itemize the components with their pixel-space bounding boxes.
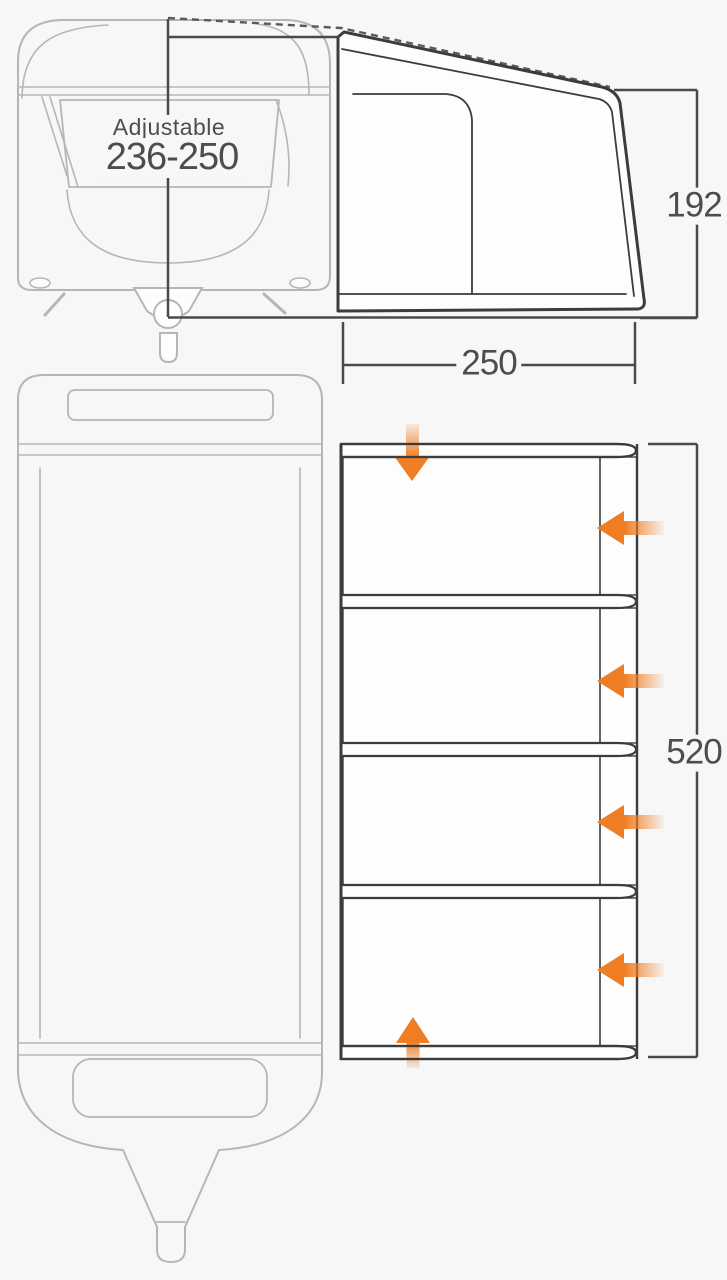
caravan-roof-arc-right xyxy=(258,24,309,94)
caravan-front-pillar-left xyxy=(42,97,78,187)
caravan-plan-view xyxy=(18,375,322,1262)
caravan-front-elevation xyxy=(18,20,330,362)
awning-side-elevation xyxy=(338,32,644,311)
awning-side-outline xyxy=(338,32,644,311)
air-beam-4 xyxy=(341,885,636,898)
caravan-plan-side-lines xyxy=(40,468,300,1038)
caravan-plan-bottom-seam xyxy=(18,1043,322,1055)
awning-height-value: 192 xyxy=(661,188,726,225)
awning-width-value: 250 xyxy=(456,346,521,383)
caravan-plan-front-window xyxy=(68,390,273,420)
caravan-marker-light-right xyxy=(290,278,310,288)
awning-dimension-diagram: Adjustable 236-250 250 192 520 xyxy=(0,0,727,1280)
air-beam-2 xyxy=(341,595,636,608)
awning-plan-view xyxy=(341,424,664,1068)
adjustable-height-value: 236-250 xyxy=(101,138,243,178)
caravan-plan-front-locker xyxy=(73,1059,267,1117)
caravan-marker-light-left xyxy=(30,278,50,288)
caravan-plan-outline xyxy=(18,375,322,1262)
awning-depth-value: 520 xyxy=(661,735,726,772)
air-beam-1 xyxy=(341,444,636,457)
caravan-plan-top-seam xyxy=(18,444,322,455)
air-beam-3 xyxy=(341,743,636,756)
air-beam-5 xyxy=(341,1046,636,1059)
caravan-rail-lines xyxy=(18,87,330,95)
